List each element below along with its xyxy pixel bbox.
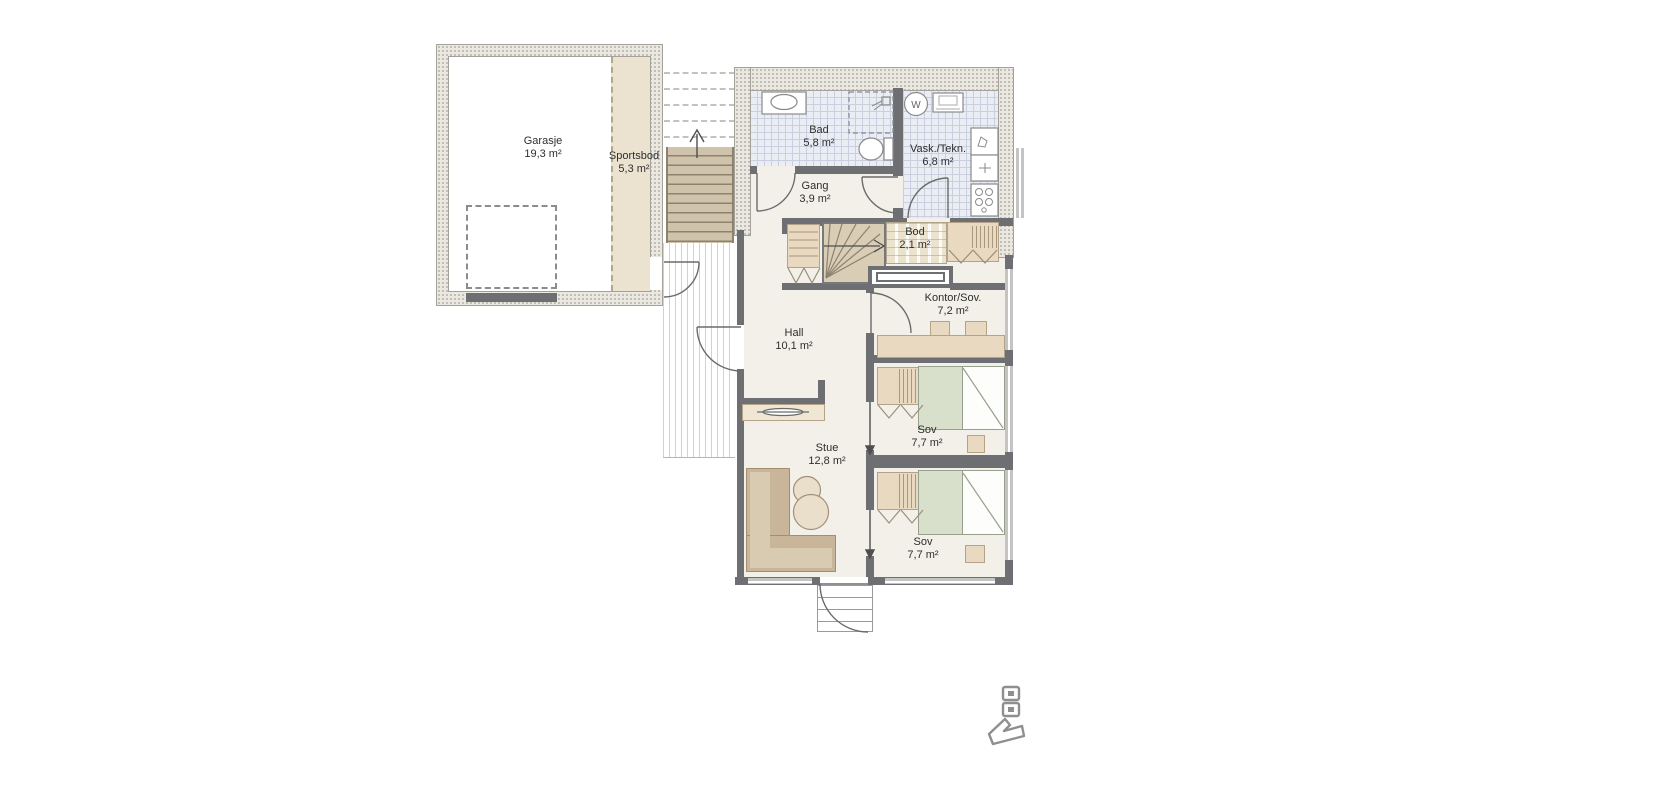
livingroom-window — [748, 578, 812, 584]
bedroom1-window — [1005, 366, 1013, 452]
sofa-cushion — [750, 548, 832, 568]
roof-overhang-dash — [664, 120, 735, 122]
wall-stair-bottom — [782, 283, 872, 290]
laundry-window — [1016, 148, 1024, 218]
house-wall-left-upper — [735, 68, 750, 235]
room-label-sov-2: Sov 7,7 m² — [907, 536, 938, 562]
wall-right-b — [1005, 350, 1013, 366]
car-space-dashed-outline — [466, 205, 557, 289]
office-wardrobe-hangers — [972, 226, 998, 248]
room-area: 6,8 m² — [922, 156, 953, 168]
wall-right-d — [1005, 560, 1013, 585]
wall-bath-bottom-a — [750, 166, 757, 174]
room-label-stue: Stue 12,8 m² — [808, 442, 845, 468]
bedroom2-window — [1005, 470, 1013, 560]
room-area: 2,1 m² — [899, 239, 930, 251]
office-window — [1005, 269, 1013, 350]
bedroom2-bed-duvet — [962, 471, 1004, 534]
room-area: 5,3 m² — [618, 163, 649, 175]
wall-center-b — [866, 333, 874, 402]
room-label-bod: Bod 2,1 m² — [899, 226, 930, 252]
wall-bed1-bed2 — [866, 455, 1013, 468]
room-label-garasje: Garasje 19,3 m² — [524, 135, 563, 161]
room-name: Garasje — [524, 135, 563, 147]
tv-bench — [742, 404, 825, 421]
hall-closet — [787, 224, 820, 268]
room-area: 7,2 m² — [937, 305, 968, 317]
room-name: Bad — [809, 124, 829, 136]
roof-overhang-dash — [664, 104, 735, 106]
bedroom1-bed-duvet — [962, 367, 1004, 429]
exterior-exit-steps — [817, 585, 873, 632]
office-chair — [930, 321, 950, 336]
room-name: Vask./Tekn. — [910, 143, 966, 155]
room-label-sportsbod: Sportsbod 5,3 m² — [609, 150, 659, 176]
entrance-deck — [663, 243, 735, 458]
bedroom2-south-window — [885, 578, 995, 584]
office-chair — [965, 321, 987, 336]
room-area: 5,8 m² — [803, 137, 834, 149]
room-label-sov-1: Sov 7,7 m² — [911, 424, 942, 450]
wall-left-a — [737, 230, 744, 325]
room-label-gang: Gang 3,9 m² — [799, 180, 830, 206]
room-name: Sov — [918, 424, 937, 436]
roof-overhang-dash — [664, 136, 735, 138]
house-wall-right-upper — [999, 68, 1013, 257]
garage-door — [466, 293, 557, 302]
room-area: 12,8 m² — [808, 455, 845, 467]
office-desk — [877, 335, 1005, 358]
sportsbod-door-opening — [650, 257, 662, 290]
wall-left-b — [737, 369, 744, 577]
room-area: 3,9 m² — [799, 193, 830, 205]
bedroom2-nightstand — [965, 545, 985, 563]
exterior-stairs — [666, 147, 734, 243]
room-name: Kontor/Sov. — [925, 292, 982, 304]
roof-overhang-dash — [664, 72, 735, 74]
room-name: Gang — [802, 180, 829, 192]
room-label-kontor-sov: Kontor/Sov. 7,2 m² — [925, 292, 982, 318]
room-label-vask-tekn: Vask./Tekn. 6,8 m² — [910, 143, 966, 169]
room-area: 10,1 m² — [775, 340, 812, 352]
wall-office-top — [950, 283, 1006, 290]
stair-niche-inner — [876, 272, 945, 282]
roof-overhang-dash — [664, 88, 735, 90]
wall-bath-laundry-a — [893, 88, 903, 176]
room-area: 7,7 m² — [907, 549, 938, 561]
room-area: 7,7 m² — [911, 437, 942, 449]
wall-tv-return — [818, 380, 825, 404]
room-name: Stue — [816, 442, 839, 454]
floor-plan-canvas: W — [0, 0, 1670, 800]
wall-center-d — [866, 556, 874, 577]
bedroom1-nightstand — [967, 435, 985, 453]
room-name: Hall — [785, 327, 804, 339]
house-wall-top — [735, 68, 1013, 90]
room-area: 19,3 m² — [524, 148, 561, 160]
room-name: Sportsbod — [609, 150, 659, 162]
wall-right-c — [1005, 452, 1013, 470]
room-name: Sov — [914, 536, 933, 548]
wall-right-a — [1005, 255, 1013, 269]
room-label-bad: Bad 5,8 m² — [803, 124, 834, 150]
wall-bath-bottom-b — [795, 166, 903, 174]
room-name: Bod — [905, 226, 925, 238]
room-label-hall: Hall 10,1 m² — [775, 327, 812, 353]
builder-logo — [989, 687, 1024, 744]
